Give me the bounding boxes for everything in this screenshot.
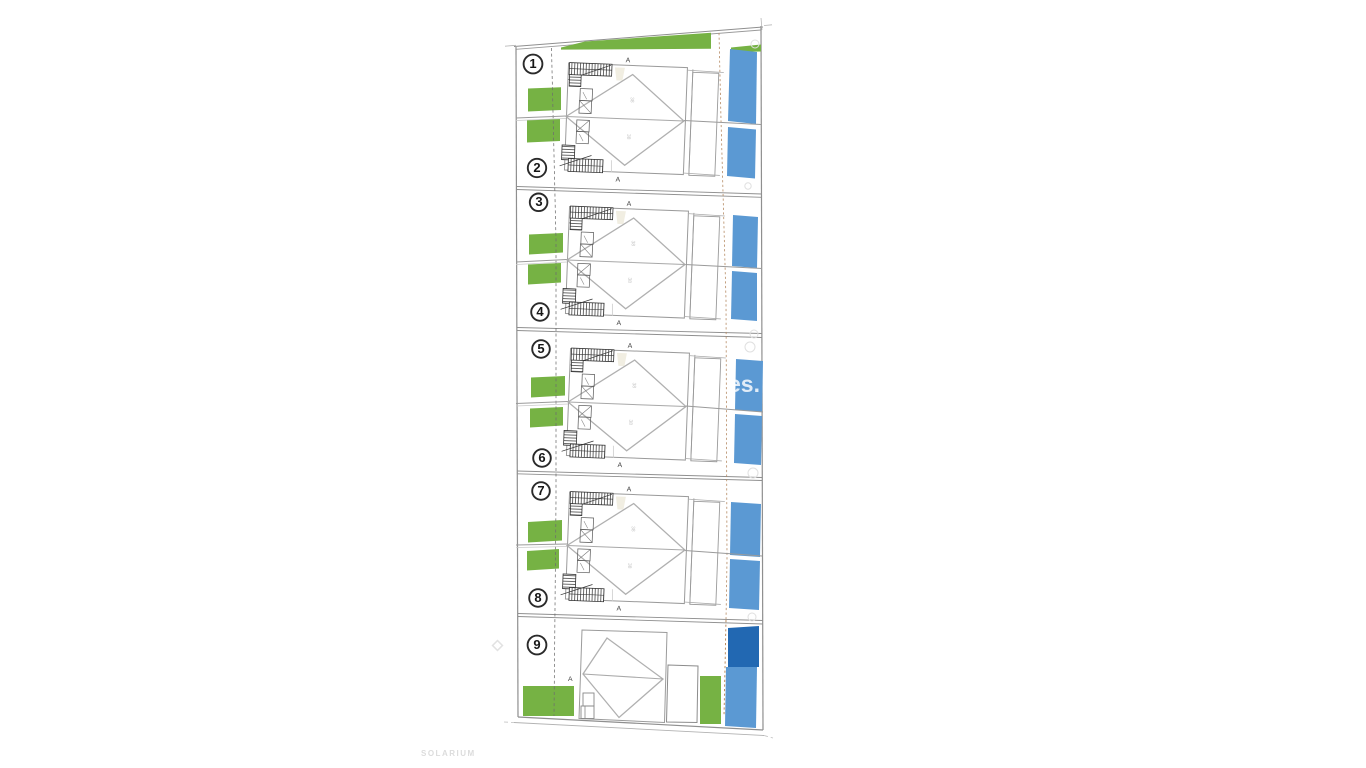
svg-text:4: 4 — [536, 304, 544, 319]
svg-text:SOLARIUM: SOLARIUM — [421, 749, 476, 758]
svg-text:5: 5 — [537, 341, 544, 356]
svg-text:A: A — [568, 676, 573, 683]
svg-text:9: 9 — [533, 637, 540, 652]
svg-text:1: 1 — [529, 56, 536, 71]
svg-text:6: 6 — [538, 450, 545, 465]
svg-text:2: 2 — [533, 160, 540, 175]
svg-text:7: 7 — [537, 483, 544, 498]
svg-text:8: 8 — [534, 590, 541, 605]
svg-text:3: 3 — [535, 194, 542, 209]
svg-text:es.: es. — [728, 371, 760, 397]
